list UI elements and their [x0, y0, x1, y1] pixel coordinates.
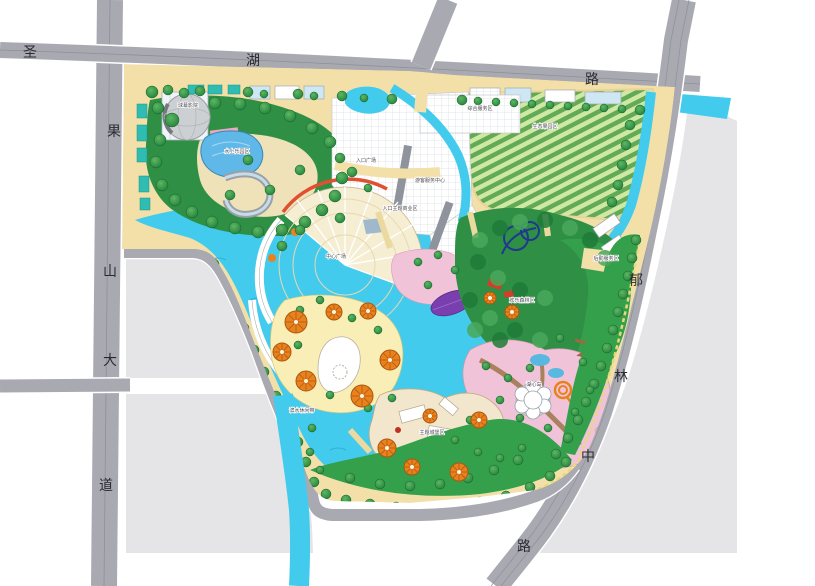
forest-canopy — [462, 292, 478, 308]
road-label-char: 道 — [99, 478, 113, 494]
tree — [414, 258, 422, 266]
carousel-ride — [404, 459, 420, 475]
forest-canopy — [512, 214, 528, 230]
forest-canopy — [482, 310, 498, 326]
tree — [360, 94, 368, 102]
tree — [596, 361, 606, 371]
tree — [156, 179, 168, 191]
tree — [617, 160, 627, 170]
carousel-ride — [505, 305, 519, 319]
tree — [528, 100, 536, 108]
forest-canopy — [492, 332, 508, 348]
tree — [209, 97, 221, 109]
site-label: 游客服务中心 — [415, 177, 445, 184]
masterplan-map: 圣果山大道湖路郁林中路 水上乐园区球幕影院入口主题商业区游客服务中心生态果园区入… — [0, 0, 815, 586]
tree — [602, 343, 612, 353]
tree — [618, 105, 626, 113]
forest-canopy — [472, 232, 488, 248]
tree — [621, 140, 631, 150]
tree — [635, 105, 645, 115]
carousel-ride — [380, 350, 400, 370]
site-label: 生态果园区 — [532, 123, 557, 130]
road-label-char: 郁 — [629, 273, 643, 289]
tree — [586, 386, 594, 394]
tree — [492, 98, 500, 106]
tree — [510, 99, 518, 107]
tree — [335, 213, 345, 223]
forest-canopy — [532, 332, 548, 348]
tree — [295, 225, 305, 235]
carousel-ride — [423, 409, 437, 423]
site-label: 后勤服务区 — [593, 255, 618, 262]
tree — [625, 120, 635, 130]
road-label-char: 圣 — [23, 45, 37, 61]
tree — [571, 408, 579, 416]
forest-canopy — [470, 254, 486, 270]
tree — [608, 325, 618, 335]
tree — [579, 358, 587, 366]
forest-canopy — [537, 290, 553, 306]
tree — [329, 190, 341, 202]
tree — [607, 197, 617, 207]
tree — [504, 374, 512, 382]
tree — [306, 122, 318, 134]
tree — [284, 110, 296, 122]
carousel-ride — [471, 412, 487, 428]
tree — [435, 479, 445, 489]
tree — [518, 444, 526, 452]
road-label-char: 湖 — [246, 53, 260, 69]
tree — [526, 364, 534, 372]
site-label: 入口广场 — [356, 157, 376, 164]
tree — [489, 465, 499, 475]
road-label-char: 林 — [614, 369, 628, 385]
tree — [374, 326, 382, 334]
tree — [276, 224, 288, 236]
tree — [308, 424, 316, 432]
tree — [293, 89, 303, 99]
tree — [229, 222, 241, 234]
site-label: 入口主题商业区 — [382, 205, 417, 212]
tree — [516, 414, 524, 422]
tree — [573, 415, 583, 425]
tree — [150, 156, 162, 168]
road-label-char: 中 — [581, 449, 595, 465]
tree — [265, 185, 275, 195]
tree — [388, 394, 396, 402]
tree — [551, 449, 561, 459]
forest-canopy — [582, 232, 598, 248]
tree — [294, 341, 302, 349]
road-west-cross-street — [0, 385, 130, 386]
tree — [152, 102, 164, 114]
tree — [146, 86, 158, 98]
tree — [336, 172, 348, 184]
tree — [243, 155, 253, 165]
carousel-ride — [450, 463, 468, 481]
site-label: 水上乐园区 — [224, 148, 249, 155]
tree — [424, 281, 432, 289]
carousel-ride — [360, 303, 376, 319]
tree — [564, 102, 572, 110]
tree — [326, 391, 334, 399]
tree — [451, 266, 459, 274]
carousel-ride — [378, 439, 396, 457]
tree — [316, 466, 324, 474]
tree — [613, 307, 623, 317]
road-label-char: 路 — [585, 72, 599, 88]
tree — [563, 433, 573, 443]
tree — [206, 216, 218, 228]
tree — [277, 241, 287, 251]
site-label: 欢乐森林区 — [509, 297, 534, 304]
tree — [337, 91, 347, 101]
tree — [348, 314, 356, 322]
tree — [243, 87, 253, 97]
tree — [324, 136, 336, 148]
tree — [405, 481, 415, 491]
site-label: 湖心岛 — [526, 381, 541, 388]
tree — [225, 190, 235, 200]
tree — [186, 206, 198, 218]
forest-canopy — [507, 322, 523, 338]
tree — [179, 88, 189, 98]
tree — [618, 289, 628, 299]
tree — [169, 194, 181, 206]
site-label: 滨水休闲带 — [289, 407, 314, 414]
carousel-ride — [351, 385, 373, 407]
site-label: 综合服务区 — [467, 105, 492, 112]
forest-canopy — [512, 282, 528, 298]
road-label-char: 山 — [103, 264, 117, 280]
road-label-char: 果 — [107, 124, 121, 140]
tree — [613, 180, 623, 190]
tree — [163, 85, 173, 95]
tree — [496, 396, 504, 404]
tree — [457, 95, 467, 105]
tree — [316, 204, 328, 216]
carousel-ride — [285, 311, 307, 333]
site-label: 球幕影院 — [178, 102, 198, 109]
tree — [316, 296, 324, 304]
forest-canopy — [492, 220, 508, 236]
tree — [581, 397, 591, 407]
tree — [364, 184, 372, 192]
tree — [474, 448, 482, 456]
tree — [259, 102, 271, 114]
tree — [451, 436, 459, 444]
carousel-ride — [273, 343, 291, 361]
tree — [627, 253, 637, 263]
tree — [387, 94, 397, 104]
road-label-char: 大 — [103, 353, 117, 369]
tree — [345, 473, 355, 483]
tree — [545, 471, 555, 481]
road-label-char: 路 — [517, 539, 531, 555]
tree — [582, 103, 590, 111]
tree — [474, 97, 482, 105]
forest-canopy — [467, 322, 483, 338]
carousel-ride — [484, 292, 496, 304]
tree — [546, 101, 554, 109]
tree — [482, 362, 490, 370]
site-label: 中心广场 — [326, 253, 346, 260]
tree — [434, 251, 442, 259]
forest-canopy — [537, 212, 553, 228]
forest-canopy — [562, 220, 578, 236]
tree — [631, 235, 641, 245]
tree — [195, 86, 205, 96]
tree — [335, 153, 345, 163]
carousel-ride — [326, 304, 342, 320]
tree — [234, 98, 246, 110]
tree — [306, 448, 314, 456]
tree — [295, 165, 305, 175]
tree — [252, 226, 264, 238]
tree — [513, 455, 523, 465]
site-label: 主题城堡区 — [419, 429, 444, 436]
tree — [496, 454, 504, 462]
carousel-ride — [296, 371, 316, 391]
tree — [556, 334, 564, 342]
tree — [260, 90, 268, 98]
tree — [347, 167, 357, 177]
forest-canopy — [490, 270, 506, 286]
tree — [310, 92, 318, 100]
tree — [375, 479, 385, 489]
map-canvas: 圣果山大道湖路郁林中路 水上乐园区球幕影院入口主题商业区游客服务中心生态果园区入… — [0, 0, 815, 586]
tree — [544, 424, 552, 432]
tree — [600, 104, 608, 112]
tree — [154, 134, 166, 146]
tree — [165, 113, 179, 127]
tree — [561, 457, 571, 467]
